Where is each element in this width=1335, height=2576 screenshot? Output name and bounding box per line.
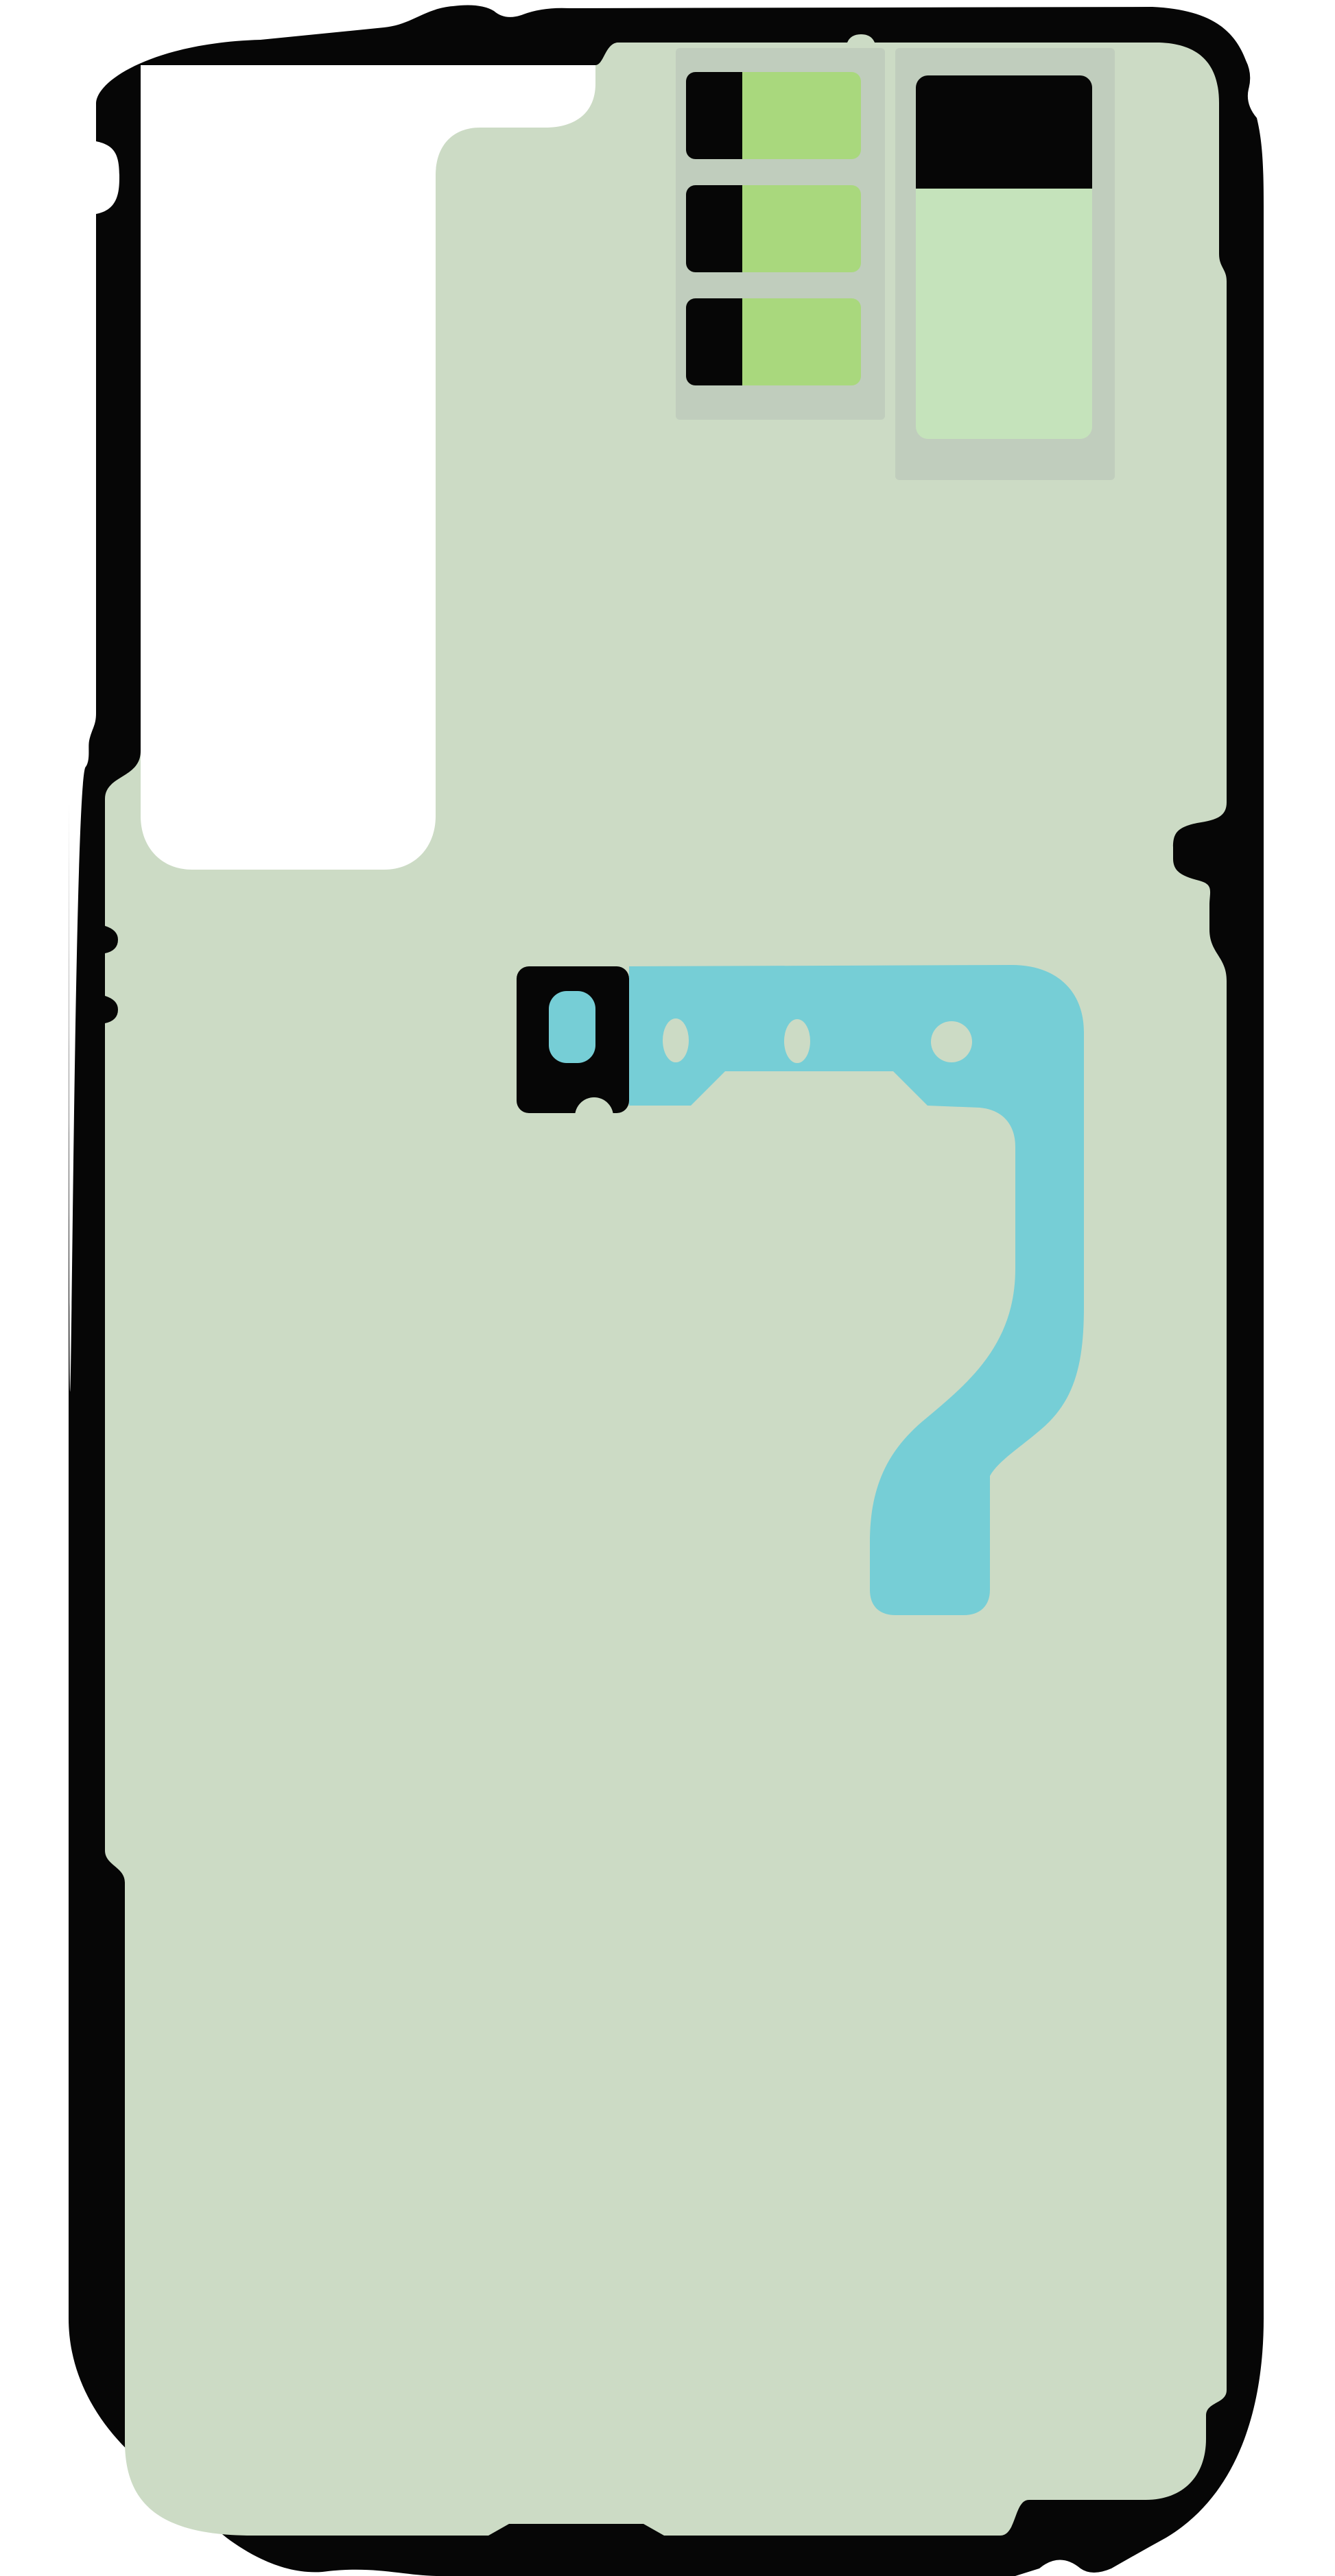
strip-1-green-part bbox=[742, 72, 861, 159]
adhesive-strip-row-3 bbox=[686, 298, 861, 385]
teal-hole-left bbox=[663, 1018, 689, 1062]
adhesive-strip-row-2 bbox=[686, 185, 861, 272]
strip-3-black-part bbox=[686, 298, 742, 385]
strip-1-black-part bbox=[686, 72, 742, 159]
adhesive-strip-row-1 bbox=[686, 72, 861, 159]
strip-2-black-part bbox=[686, 185, 742, 272]
teal-hole-right bbox=[931, 1021, 972, 1062]
adhesive-kit-illustration bbox=[0, 0, 1335, 2576]
teal-hole-middle bbox=[784, 1019, 810, 1063]
battery-card-mint-area bbox=[916, 189, 1092, 439]
battery-card-black-top bbox=[916, 75, 1092, 189]
camera-bracket-arch-notch bbox=[575, 1097, 613, 1136]
product-photo-canvas bbox=[0, 0, 1335, 2576]
strip-2-green-part bbox=[742, 185, 861, 272]
camera-bracket-teal-window bbox=[549, 991, 595, 1063]
strip-3-green-part bbox=[742, 298, 861, 385]
